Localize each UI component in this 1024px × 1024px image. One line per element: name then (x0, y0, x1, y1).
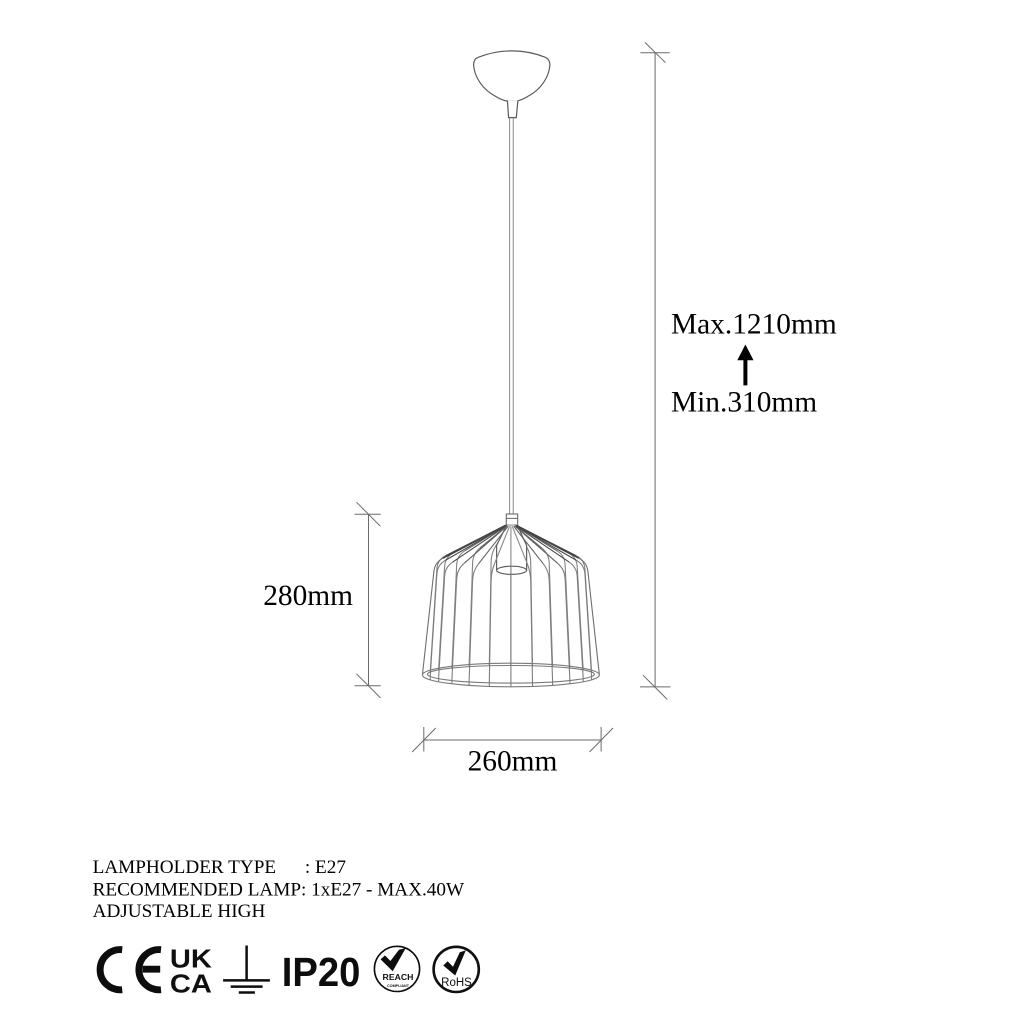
svg-text:RoHS: RoHS (441, 977, 472, 989)
svg-text:ADJUSTABLE HIGH: ADJUSTABLE HIGH (93, 901, 266, 922)
svg-text:260mm: 260mm (468, 746, 558, 778)
svg-text:Max.1210mm: Max.1210mm (671, 308, 837, 340)
svg-text:CA: CA (170, 970, 212, 998)
svg-text:LAMPHOLDER TYPE : E27: LAMPHOLDER TYPE : E27 (93, 857, 347, 878)
svg-text:REACH: REACH (383, 972, 414, 982)
svg-text:280mm: 280mm (263, 580, 353, 612)
svg-text:Min.310mm: Min.310mm (671, 386, 817, 418)
svg-text:IP20: IP20 (282, 949, 361, 995)
svg-text:RECOMMENDED LAMP: 1xE27 - MAX.: RECOMMENDED LAMP: 1xE27 - MAX.40W (93, 880, 465, 901)
svg-text:COMPLIANT: COMPLIANT (387, 984, 410, 988)
